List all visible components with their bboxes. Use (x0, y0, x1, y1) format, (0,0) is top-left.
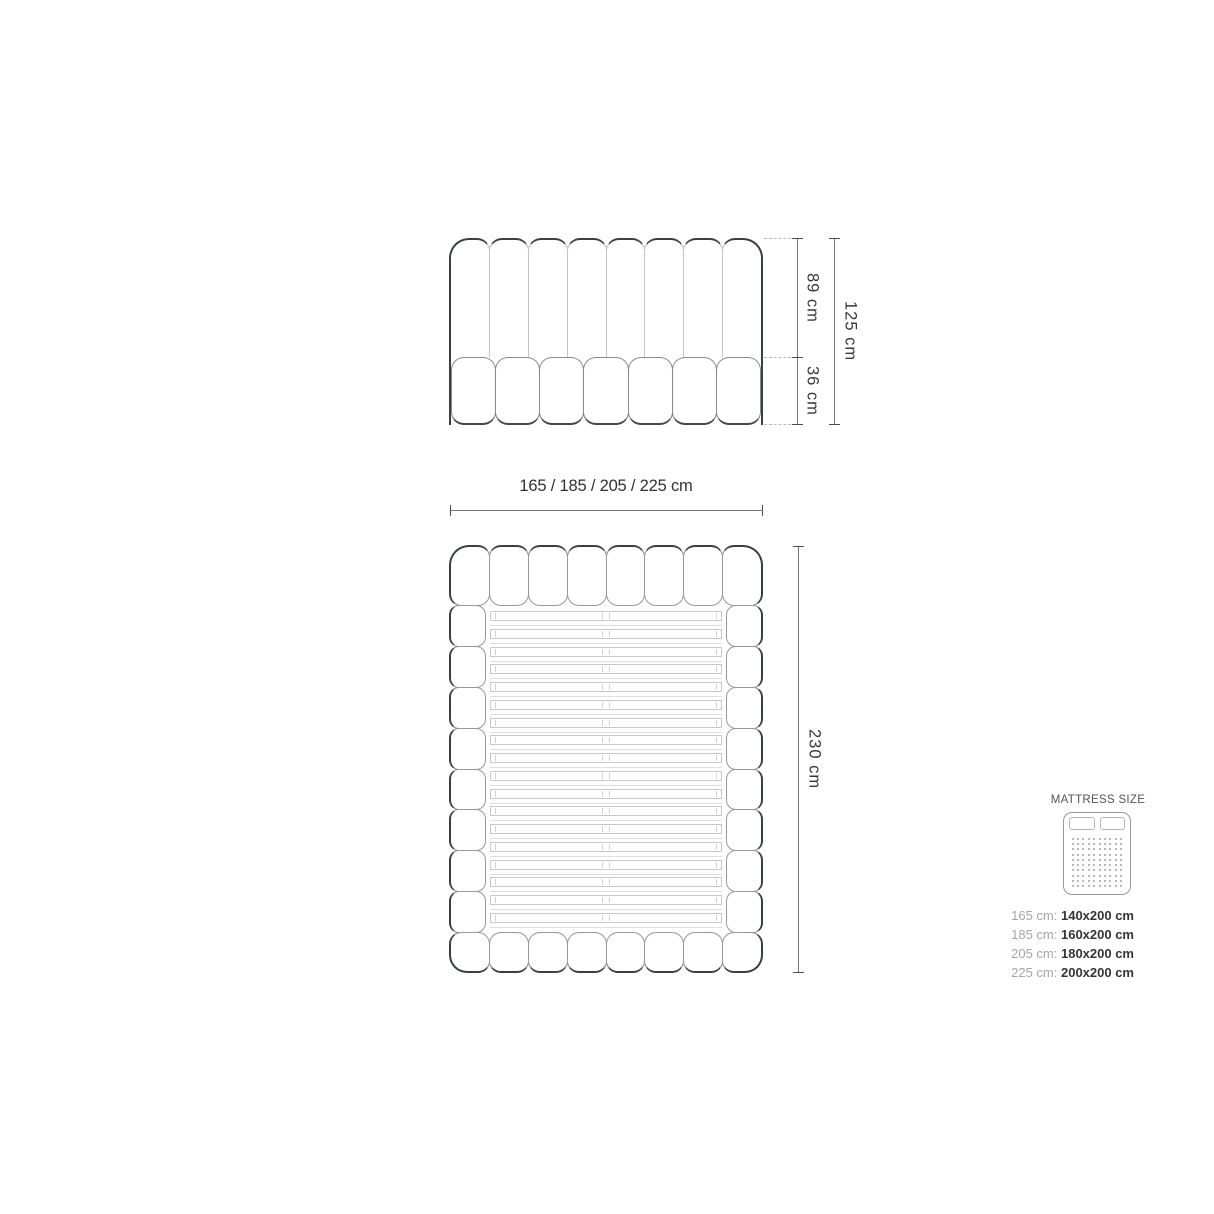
bed-slat (490, 629, 722, 639)
mattress-size-table: 165 cm: 140x200 cm 185 cm: 160x200 cm 20… (1000, 906, 1134, 982)
bed-slat (490, 895, 722, 905)
mattress-dot (1077, 864, 1079, 866)
mattress-dot (1077, 875, 1079, 877)
mattress-dot (1072, 880, 1074, 882)
mattress-dot (1104, 859, 1106, 861)
footboard-tuft (528, 932, 568, 973)
slat-row (490, 611, 722, 625)
top-plan-drawing (449, 545, 763, 973)
mattress-pillows (1069, 817, 1125, 830)
slat-row (490, 700, 722, 714)
footboard-tuft (606, 932, 646, 973)
mattress-dot (1082, 880, 1084, 882)
mattress-size-value: 140x200 cm (1061, 908, 1134, 923)
footboard-tuft (722, 932, 763, 973)
mattress-dot (1099, 864, 1101, 866)
base-cushion (451, 357, 496, 425)
bed-slat (490, 913, 722, 923)
mattress-dot (1093, 838, 1095, 840)
mattress-dot (1072, 854, 1074, 856)
mattress-dot (1099, 869, 1101, 871)
mattress-dot (1088, 848, 1090, 850)
mattress-dot (1115, 859, 1117, 861)
bed-slat (490, 735, 722, 745)
footboard-tuft (567, 932, 607, 973)
dimension-line-125 (834, 238, 835, 425)
dimension-tick (792, 424, 803, 425)
rail-segment (726, 769, 763, 811)
bed-dimension-sheet: 89 cm 36 cm 125 cm 165 / 185 / 205 / 225… (0, 0, 1214, 1214)
mattress-dot (1072, 864, 1074, 866)
slat-divider-line (490, 732, 722, 733)
headboard-tuft (644, 545, 684, 606)
headboard-tuft (449, 545, 490, 606)
slat-divider-line (490, 661, 722, 662)
mattress-dot (1082, 843, 1084, 845)
mattress-dot (1109, 864, 1111, 866)
mattress-dot (1115, 885, 1117, 887)
bed-slat (490, 860, 722, 870)
side-rail-right (726, 605, 763, 933)
slat-divider-line (490, 820, 722, 821)
mattress-dot (1099, 859, 1101, 861)
mattress-dot (1072, 885, 1074, 887)
width-option-label: 185 cm: (1011, 927, 1057, 942)
footboard-tuft-row (449, 932, 763, 973)
mattress-dot (1104, 875, 1106, 877)
mattress-dot (1077, 843, 1079, 845)
headboard-tuft (489, 545, 529, 606)
slat-row (490, 824, 722, 838)
side-rail-left (449, 605, 486, 933)
mattress-dot (1072, 859, 1074, 861)
slat-row (490, 664, 722, 678)
mattress-dot (1115, 869, 1117, 871)
headboard-tuft (683, 545, 723, 606)
slat-row (490, 860, 722, 874)
bed-slat (490, 700, 722, 710)
slat-divider-line (490, 767, 722, 768)
rail-segment (449, 728, 486, 770)
mattress-dot (1082, 848, 1084, 850)
mattress-dot (1077, 885, 1079, 887)
mattress-dot (1115, 854, 1117, 856)
slat-row (490, 753, 722, 767)
slat-divider-line (490, 785, 722, 786)
mattress-dot (1077, 859, 1079, 861)
mattress-dot (1104, 864, 1106, 866)
slat-divider-line (490, 856, 722, 857)
base-cushion (539, 357, 584, 425)
mattress-dot (1115, 880, 1117, 882)
rail-segment (726, 687, 763, 729)
rail-segment (726, 891, 763, 933)
mattress-dot (1093, 880, 1095, 882)
rail-segment (449, 850, 486, 892)
mattress-dot (1088, 869, 1090, 871)
mattress-dot (1088, 854, 1090, 856)
mattress-dot (1093, 869, 1095, 871)
mattress-dot (1088, 843, 1090, 845)
headboard-tuft (567, 545, 607, 606)
dimension-line-89-36 (797, 238, 798, 425)
mattress-dot (1115, 875, 1117, 877)
mattress-size-title: MATTRESS SIZE (1040, 794, 1156, 806)
slat-row (490, 895, 722, 909)
slat-area (490, 611, 722, 927)
mattress-dot (1072, 869, 1074, 871)
mattress-size-row: 205 cm: 180x200 cm (1000, 944, 1134, 963)
slat-row (490, 806, 722, 820)
bed-slat (490, 842, 722, 852)
mattress-size-value: 160x200 cm (1061, 927, 1134, 942)
mattress-dot (1093, 875, 1095, 877)
slat-row (490, 682, 722, 696)
mattress-dot (1120, 843, 1122, 845)
bed-slat (490, 682, 722, 692)
mattress-dot (1120, 859, 1122, 861)
mattress-dot (1088, 864, 1090, 866)
mattress-dot (1099, 880, 1101, 882)
mattress-dot (1088, 838, 1090, 840)
width-option-label: 205 cm: (1011, 946, 1057, 961)
dimension-label-width-options: 165 / 185 / 205 / 225 cm (449, 477, 763, 496)
headboard-tuft (722, 545, 763, 606)
mattress-dot (1104, 880, 1106, 882)
mattress-dot (1104, 885, 1106, 887)
slat-row (490, 647, 722, 661)
rail-segment (726, 850, 763, 892)
footboard-tuft (644, 932, 684, 973)
mattress-dot (1104, 843, 1106, 845)
slat-row (490, 629, 722, 643)
mattress-dot (1099, 838, 1101, 840)
base-cushion (583, 357, 628, 425)
base-cushion (495, 357, 540, 425)
mattress-dot (1120, 875, 1122, 877)
mattress-dot (1082, 859, 1084, 861)
rail-segment (726, 646, 763, 688)
mattress-dot (1093, 859, 1095, 861)
rail-segment (449, 687, 486, 729)
mattress-dot (1077, 854, 1079, 856)
dimension-label-lower-height: 36 cm (801, 358, 823, 424)
mattress-size-value: 180x200 cm (1061, 946, 1134, 961)
width-option-label: 165 cm: (1011, 908, 1057, 923)
dimension-tick (792, 238, 803, 239)
mattress-dot (1093, 885, 1095, 887)
mattress-size-value: 200x200 cm (1061, 965, 1134, 980)
headboard-tuft (606, 545, 646, 606)
slat-divider-line (490, 714, 722, 715)
dimension-label-upper-height: 89 cm (801, 240, 823, 356)
slat-divider-line (490, 891, 722, 892)
mattress-size-row: 225 cm: 200x200 cm (1000, 963, 1134, 982)
mattress-dot (1088, 880, 1090, 882)
mattress-dot (1082, 875, 1084, 877)
mattress-dot (1120, 885, 1122, 887)
mattress-dot (1115, 843, 1117, 845)
mattress-dot (1120, 880, 1122, 882)
slat-row (490, 842, 722, 856)
front-elevation-drawing (449, 238, 763, 425)
pillow-icon (1100, 817, 1126, 830)
rail-segment (726, 809, 763, 851)
slat-divider-line (490, 874, 722, 875)
mattress-dot (1077, 869, 1079, 871)
mattress-dot (1099, 875, 1101, 877)
mattress-dot (1088, 859, 1090, 861)
mattress-dot (1115, 848, 1117, 850)
mattress-dot (1120, 869, 1122, 871)
bed-slat (490, 664, 722, 674)
mattress-dot (1104, 869, 1106, 871)
mattress-dot (1104, 838, 1106, 840)
mattress-icon (1063, 812, 1131, 895)
mattress-dot (1109, 869, 1111, 871)
slat-row (490, 735, 722, 749)
bed-slat (490, 771, 722, 781)
slat-divider-line (490, 643, 722, 644)
dimension-label-total-height: 125 cm (838, 238, 862, 425)
bed-slat (490, 806, 722, 816)
mattress-dot (1072, 875, 1074, 877)
mattress-dot (1120, 838, 1122, 840)
mattress-dot (1082, 869, 1084, 871)
mattress-dot (1109, 875, 1111, 877)
mattress-dot (1077, 880, 1079, 882)
mattress-dot (1109, 880, 1111, 882)
slat-row (490, 877, 722, 891)
mattress-dot (1093, 843, 1095, 845)
dimension-line-230 (798, 546, 799, 973)
mattress-dot (1109, 885, 1111, 887)
mattress-size-row: 185 cm: 160x200 cm (1000, 925, 1134, 944)
footboard-tuft (683, 932, 723, 973)
mattress-dot (1072, 838, 1074, 840)
mattress-dot (1115, 838, 1117, 840)
mattress-dot (1099, 848, 1101, 850)
mattress-dot (1120, 848, 1122, 850)
slat-divider-line (490, 927, 722, 928)
mattress-dot (1082, 838, 1084, 840)
headboard-tuft-row (449, 545, 763, 606)
rail-segment (449, 605, 486, 647)
rail-segment (449, 646, 486, 688)
slat-divider-line (490, 838, 722, 839)
bed-slat (490, 753, 722, 763)
bed-slat (490, 877, 722, 887)
slat-divider-line (490, 625, 722, 626)
slat-divider-line (490, 696, 722, 697)
bed-base-front (451, 357, 761, 425)
bed-slat (490, 718, 722, 728)
mattress-dot (1120, 854, 1122, 856)
mattress-dot (1099, 885, 1101, 887)
mattress-dot (1072, 848, 1074, 850)
rail-segment (449, 769, 486, 811)
mattress-dot (1093, 854, 1095, 856)
mattress-dot (1104, 848, 1106, 850)
mattress-dot (1093, 848, 1095, 850)
mattress-dot (1109, 848, 1111, 850)
rail-segment (449, 891, 486, 933)
bed-slat (490, 611, 722, 621)
mattress-dot (1077, 838, 1079, 840)
mattress-dot (1109, 838, 1111, 840)
base-cushion (672, 357, 717, 425)
slat-divider-line (490, 678, 722, 679)
footboard-tuft (489, 932, 529, 973)
mattress-dot (1099, 843, 1101, 845)
bed-slat (490, 647, 722, 657)
rail-segment (726, 605, 763, 647)
mattress-dot (1088, 885, 1090, 887)
base-cushion (628, 357, 673, 425)
slat-row (490, 913, 722, 927)
mattress-dot (1082, 864, 1084, 866)
slat-row (490, 718, 722, 732)
rail-segment (449, 809, 486, 851)
width-option-label: 225 cm: (1011, 965, 1057, 980)
mattress-dot (1093, 864, 1095, 866)
mattress-dot (1109, 854, 1111, 856)
mattress-dot (1120, 864, 1122, 866)
mattress-dot (1109, 859, 1111, 861)
slat-divider-line (490, 909, 722, 910)
mattress-dot (1109, 843, 1111, 845)
mattress-dot (1082, 854, 1084, 856)
headboard-tuft (528, 545, 568, 606)
slat-row (490, 771, 722, 785)
slat-row (490, 789, 722, 803)
mattress-dot (1072, 843, 1074, 845)
dimension-label-plan-length: 230 cm (802, 546, 826, 973)
pillow-icon (1069, 817, 1095, 830)
mattress-dot (1115, 864, 1117, 866)
bed-slat (490, 824, 722, 834)
mattress-dot (1082, 885, 1084, 887)
dimension-tick (762, 505, 763, 516)
mattress-dot (1077, 848, 1079, 850)
mattress-dot (1099, 854, 1101, 856)
rail-segment (726, 728, 763, 770)
footboard-tuft (449, 932, 490, 973)
slat-divider-line (490, 803, 722, 804)
bed-slat (490, 789, 722, 799)
dimension-tick (450, 505, 451, 516)
slat-divider-line (490, 749, 722, 750)
mattress-dot-grid (1070, 836, 1124, 889)
mattress-size-row: 165 cm: 140x200 cm (1000, 906, 1134, 925)
base-cushion (716, 357, 761, 425)
dimension-line-width (450, 510, 763, 511)
mattress-dot (1104, 854, 1106, 856)
mattress-dot (1088, 875, 1090, 877)
